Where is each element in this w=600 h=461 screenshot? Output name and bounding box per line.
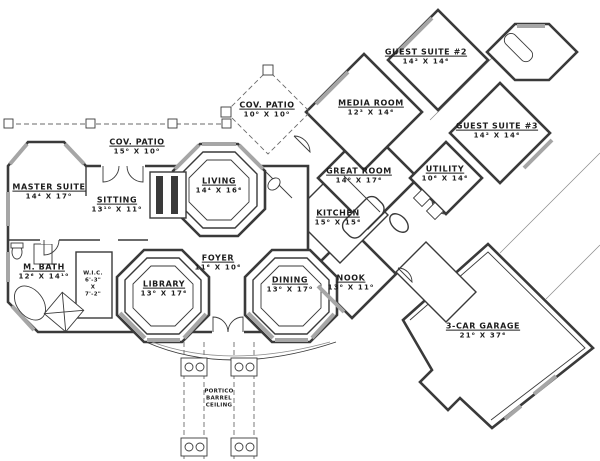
floor-plan: COV. PATIO 15⁰ X 10⁰ MASTER SUITE 14⁴ X … <box>0 0 600 461</box>
cov-patio-center-outline <box>221 65 310 154</box>
toilet <box>11 243 23 259</box>
portico-outline <box>146 342 336 461</box>
cov-patio-left-outline <box>4 119 231 128</box>
fireplace <box>150 172 186 218</box>
floor-plan-linework <box>0 0 600 461</box>
